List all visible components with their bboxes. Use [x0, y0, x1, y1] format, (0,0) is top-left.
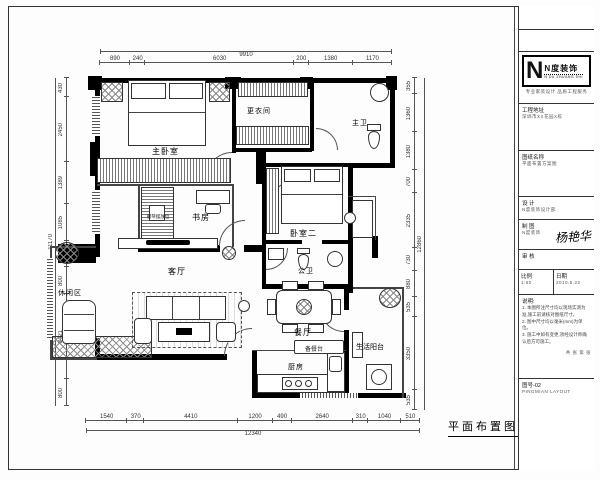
dim-segment: 430 [56, 78, 67, 97]
dim-segment: 1389 [56, 162, 67, 205]
dim-segment: 490 [273, 410, 292, 421]
total-h: 9910 [100, 42, 392, 52]
titleblock-divider [514, 6, 515, 470]
tb-val: 深圳市XX花园X栋 [522, 114, 591, 120]
dlbl: 6030 [213, 56, 226, 62]
dlbl: 490 [277, 414, 287, 420]
tb-val: 1:60 [521, 280, 551, 285]
tb-date: 2010.5.22 [556, 280, 592, 285]
dim-segment: 1170 [353, 52, 392, 63]
dlbl: 355 [406, 81, 412, 91]
dlbl: 1170 [366, 56, 379, 62]
sofa-icon [146, 296, 226, 320]
dim-segment: 1380 [309, 52, 353, 63]
logo-tagline: 专业家装设计 品质工程服务 [522, 89, 591, 95]
tb-label: 图纸名称 [522, 153, 591, 161]
box [282, 281, 298, 290]
dlbl: 1540 [100, 414, 113, 420]
span: N度装饰 N DU ZHUANG SHI [544, 63, 583, 79]
room-label-dining: 餐厅 [294, 327, 312, 338]
box [308, 281, 324, 290]
tv-icon [146, 240, 190, 245]
shelf-dressing-bottom-icon [236, 126, 309, 145]
dlbl: 1085 [58, 216, 64, 229]
dlbl: 2640 [316, 414, 329, 420]
dim-segment: 535 [404, 297, 415, 317]
dim-chain-top: 9910 890240603020013801170 [100, 42, 392, 63]
w [322, 240, 352, 244]
tb-label: 审 核 [522, 252, 591, 260]
lounge-chair-icon [62, 300, 96, 344]
room-label-bedroom2: 卧室二 [290, 228, 317, 239]
dim-segment: 800 [56, 379, 67, 406]
dim-segment: 890 [100, 52, 130, 63]
segs-v: 3551360138070023357308805353350535 [404, 78, 415, 410]
dim-segment: 880 [404, 271, 415, 297]
room-label-public-bath: 公卫 [298, 266, 314, 276]
div: 日期 2010.5.22 [554, 270, 594, 294]
w [256, 148, 266, 184]
tb-label: 比例 [521, 272, 551, 280]
total-h: 12340 [86, 421, 420, 431]
dim-total-bottom: 12340 [245, 431, 262, 437]
logo-cell: N N度装饰 N DU ZHUANG SHI 专业家装设计 品质工程服务 [519, 52, 594, 104]
wardrobe-master-icon [97, 158, 231, 183]
dlbl: 700 [406, 177, 412, 187]
tb-row-design: 设 计 N度装饰设计部 [519, 197, 594, 220]
dim-segment: 1360 [404, 94, 415, 132]
tl [282, 194, 342, 195]
box [222, 246, 236, 260]
box [295, 380, 302, 387]
tl [97, 184, 234, 186]
segs-h: 890240603020013801170 [100, 52, 392, 63]
dim-segment: 2335 [404, 193, 415, 248]
w [344, 288, 349, 310]
dlbl: 200 [296, 56, 306, 62]
basin-public-icon [327, 251, 343, 267]
dlbl: 880 [406, 279, 412, 289]
dim-segment: 4410 [144, 410, 237, 421]
total-v: 12860 [415, 78, 425, 410]
tb-label: 日期 [556, 272, 592, 280]
dim-total-right: 12860 [417, 236, 423, 253]
dim-segment: 310 [353, 410, 369, 421]
w [348, 163, 395, 168]
box [285, 380, 292, 387]
dlbl: 510 [405, 414, 415, 420]
w [262, 240, 302, 244]
note-line: 2. 图中尺寸均以毫米(mm)为单位。 [522, 319, 591, 333]
room-label-living: 客厅 [168, 266, 186, 277]
dim-segment: 1380 [404, 132, 415, 170]
tl [348, 196, 376, 197]
w [310, 78, 314, 151]
dlbl: 535 [406, 395, 412, 405]
signature: 杨艳华 [554, 227, 591, 246]
tb-row-sheetname: 图纸名称 平面布置方案图 [519, 151, 594, 197]
room-label-kitchen: 厨房 [288, 362, 304, 372]
tl [129, 112, 205, 113]
dim-segment: 3350 [404, 317, 415, 391]
dim-segment: 1200 [238, 410, 273, 421]
dim-segment: 1040 [368, 410, 400, 421]
dim-segment: 1540 [86, 410, 127, 421]
dlbl: 730 [406, 255, 412, 265]
tb-row-draft: 制 图 N度装饰 杨艳华 [519, 220, 594, 250]
armchair-icon [134, 318, 152, 344]
room-label-master-bedroom: 主卧室 [152, 146, 179, 157]
dim-segment: 2640 [292, 410, 353, 421]
tb-label: 图号-02 [522, 381, 591, 389]
dlbl: 800 [58, 388, 64, 398]
room-label-leisure: 休闲区 [58, 288, 82, 298]
room-label-dressing: 更衣间 [247, 106, 271, 116]
plant-balcony-icon [379, 288, 401, 308]
logo-name: N度装饰 [544, 63, 583, 74]
window-master-left [92, 96, 100, 136]
room-label-master-bath: 主卫 [352, 118, 368, 128]
dlbl: 370 [131, 414, 141, 420]
dim-chain-right: 3551360138070023357308805353350535 12860 [404, 78, 425, 410]
note-line: 3. 施工中如有变更,须经设计师确认后方可施工。 [522, 332, 591, 346]
tl [64, 314, 94, 315]
tb-row [519, 30, 594, 52]
dlbl: 800 [58, 276, 64, 286]
tb-val: 共 张 第 张 [522, 350, 591, 356]
dlbl: 890 [110, 56, 120, 62]
dlbl: 1380 [324, 56, 337, 62]
w [232, 148, 312, 152]
dlbl: 3350 [406, 347, 412, 360]
box [344, 212, 356, 224]
dim-segment: 700 [404, 170, 415, 193]
box [284, 169, 311, 182]
tl [172, 297, 173, 319]
tb-val: N度装饰设计部 [522, 207, 591, 213]
dim-chain-bottom: 15403704410120049026403101040510 12340 [86, 410, 420, 431]
room-label-piano: 钢琴摆放位 [143, 214, 173, 220]
tb-val: 平面布置方案图 [522, 161, 591, 167]
w [244, 245, 266, 252]
basin-master-icon [370, 83, 389, 102]
dim-segment: 6030 [145, 52, 294, 63]
dim-segment: 370 [127, 410, 144, 421]
tick [419, 428, 420, 433]
tb-label: 工程地址 [522, 106, 591, 114]
titleblock: N N度装饰 N DU ZHUANG SHI 专业家装设计 品质工程服务 工程地… [518, 6, 594, 470]
box [305, 380, 312, 387]
w [176, 328, 192, 335]
dim-segment: 240 [130, 52, 145, 63]
tl [375, 196, 376, 240]
tl [199, 297, 200, 319]
logo-letter: N [526, 60, 543, 82]
box [332, 299, 341, 315]
box [296, 299, 312, 315]
dlbl: 1040 [378, 414, 391, 420]
sink-icon [329, 356, 342, 372]
segs-h: 15403704410120049026403101040510 [86, 410, 420, 421]
tb-row-address: 工程地址 深圳市XX花园X栋 [519, 104, 594, 151]
box [268, 248, 284, 260]
tb-row [519, 6, 594, 30]
note-line: 1. 本图所注尺寸均以现场实测为准,施工前请核对图纸尺寸。 [522, 305, 591, 319]
dlbl: 2450 [58, 123, 64, 136]
drawing-title: 平面布置图 [448, 418, 518, 437]
box [371, 369, 387, 385]
dlbl: 1380 [406, 145, 412, 158]
room-label-study: 书房 [192, 212, 210, 223]
dim-segment: 510 [401, 410, 420, 421]
floorplan-sheet: { "drawing": { "title": "平面布置图" }, "logo… [0, 0, 600, 480]
dlbl: 4410 [184, 414, 197, 420]
box [169, 83, 203, 99]
window-leisure-left [47, 258, 53, 340]
tb-val: PINGMIAN LAYOUT [522, 389, 591, 394]
dlbl: 1360 [406, 107, 412, 120]
room-label-balcony: 生活阳台 [356, 342, 384, 352]
floor-lamp-icon [238, 300, 250, 312]
dlbl: 430 [58, 83, 64, 93]
box [131, 83, 166, 99]
dim-segment: 355 [404, 78, 415, 94]
tb-row-check: 审 核 [519, 250, 594, 270]
dlbl: 240 [133, 56, 143, 62]
wardrobe-bedroom2-icon [266, 168, 279, 234]
box [209, 82, 230, 102]
window-kitchen-bottom [300, 393, 358, 398]
dim-segment: 200 [294, 52, 309, 63]
toilet-master-icon [367, 124, 381, 131]
tb-row-footer: 图号-02 PINGMIAN LAYOUT [519, 379, 594, 405]
dim-segment: 2450 [56, 97, 67, 162]
div: 比例 1:60 [519, 270, 554, 294]
logo-sub: N DU ZHUANG SHI [544, 74, 583, 79]
dim-segment: 730 [404, 248, 415, 271]
box [267, 299, 276, 315]
tb-row-notes: 说明: 1. 本图所注尺寸均以现场实测为准,施工前请核对图纸尺寸。 2. 图中尺… [519, 295, 594, 379]
box [101, 82, 123, 102]
tb-label: 设 计 [522, 199, 591, 207]
dlbl: 535 [406, 302, 412, 312]
tl [402, 287, 404, 398]
dlbl: 310 [356, 414, 366, 420]
company-logo: N N度装饰 N DU ZHUANG SHI [522, 55, 591, 87]
w [390, 78, 395, 168]
tl [353, 287, 404, 289]
box [314, 169, 340, 182]
dlbl: 1200 [248, 414, 261, 420]
shelf-dressing-top-icon [238, 82, 308, 97]
tl [50, 358, 97, 360]
tb-label: 说明: [522, 297, 591, 305]
box [216, 322, 236, 342]
dlbl: 2335 [406, 214, 412, 227]
label-prep-counter: 备餐台 [305, 344, 323, 353]
window-study-left [92, 190, 100, 234]
desk-study-icon [196, 190, 230, 204]
tl [64, 330, 94, 331]
dim-segment: 1085 [56, 204, 67, 240]
plant-leisure-icon [55, 242, 79, 264]
dlbl: 1389 [58, 176, 64, 189]
tb-row-scale-date: 比例 1:60 日期 2010.5.22 [519, 270, 594, 295]
